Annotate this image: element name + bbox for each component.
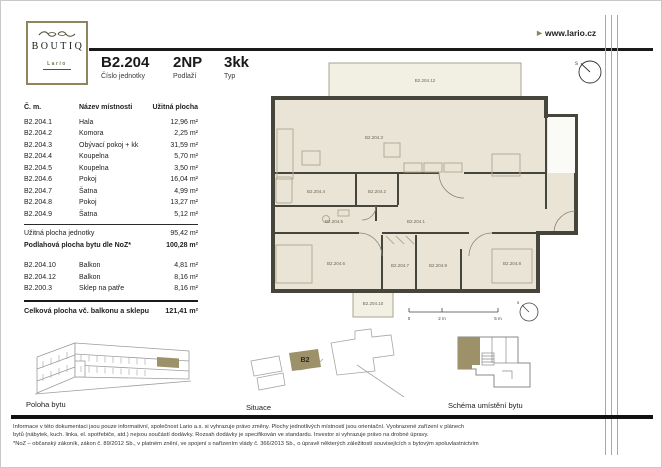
cell-name: Sklep na patře <box>79 283 142 295</box>
cell-name: Šatna <box>79 186 142 198</box>
table-row: B2.204.2Komora2,25 m² <box>24 128 198 140</box>
unit-number: B2.204 <box>101 55 149 70</box>
table-row: B2.204.9Šatna5,12 m² <box>24 209 198 221</box>
scale-two: 2 m <box>438 316 446 321</box>
col-header-code: Č. m. <box>24 102 79 114</box>
ornament-icon <box>37 29 77 40</box>
cell-area: 31,59 m² <box>142 140 198 152</box>
gold-line <box>617 15 618 455</box>
unit-sheet-page: BOUTIQ Lario B2.204 Číslo jednotky 2NP P… <box>0 0 662 468</box>
summary-usable-label: Užitná plocha jednotky <box>24 228 170 240</box>
cell-code: B2.204.4 <box>24 151 79 163</box>
table-row: B2.204.6Pokoj16,04 m² <box>24 174 198 186</box>
table-row: B2.204.8Pokoj13,27 m² <box>24 197 198 209</box>
type-value: 3kk <box>224 55 249 70</box>
type-label: Typ <box>224 73 249 80</box>
plan-compass-icon: s <box>517 300 538 321</box>
floor-block: 2NP Podlaží <box>173 55 202 80</box>
col-header-area: Užitná plocha <box>142 102 198 114</box>
stairwell-area <box>548 117 575 173</box>
cell-code: B2.204.8 <box>24 197 79 209</box>
scale-five: 5 m <box>494 316 502 321</box>
table-header-row: Č. m. Název místnosti Užitná plocha <box>24 102 198 114</box>
room-label: B2.204.6 <box>327 261 346 266</box>
floor-value: 2NP <box>173 55 202 70</box>
table-row: B2.204.12Balkon8,16 m² <box>24 272 198 284</box>
gold-line <box>611 15 612 455</box>
cell-name: Koupelna <box>79 163 142 175</box>
cell-code: B2.204.2 <box>24 128 79 140</box>
cell-name: Balkon <box>79 260 142 272</box>
schema-label: Schéma umístění bytu <box>448 401 523 410</box>
floor-plan: B2.204.12 B2.204.3 B2.204.4 B2.204.2 B2.… <box>264 59 601 329</box>
cell-code: B2.204.10 <box>24 260 79 272</box>
footer-line: *NoZ – občanský zákoník, zákon č. 89/201… <box>13 440 573 448</box>
table-divider <box>24 224 198 225</box>
summary-usable-row: Užitná plocha jednotky 95,42 m² <box>24 228 198 240</box>
cell-area: 5,12 m² <box>142 209 198 221</box>
table-row: B2.200.3Sklep na patře8,16 m² <box>24 283 198 295</box>
table-row: B2.204.5Koupelna3,50 m² <box>24 163 198 175</box>
table-row: B2.204.7Šatna4,99 m² <box>24 186 198 198</box>
room-label: B2.204.2 <box>368 189 387 194</box>
brand-name: BOUTIQ <box>30 41 86 52</box>
apartment-outline <box>273 98 576 291</box>
footer-rule <box>11 415 653 419</box>
table-row: B2.204.4Koupelna5,70 m² <box>24 151 198 163</box>
scale-zero: 0 <box>408 316 411 321</box>
brand-subname: Lario <box>43 58 71 70</box>
cell-area: 8,16 m² <box>142 272 198 284</box>
cell-code: B2.204.3 <box>24 140 79 152</box>
floor-label: Podlaží <box>173 73 202 80</box>
summary-noz-row: Podlahová plocha bytu dle NoZ* 100,28 m² <box>24 240 198 252</box>
rooms-table: Č. m. Název místnosti Užitná plocha B2.2… <box>24 102 198 316</box>
site-highlight-label: B2 <box>301 357 310 364</box>
summary-usable-value: 95,42 m² <box>170 228 198 240</box>
room-label: B2.204.1 <box>407 219 426 224</box>
website-text: www.lario.cz <box>545 28 596 38</box>
table-row: B2.204.10Balkon4,81 m² <box>24 260 198 272</box>
cell-area: 8,16 m² <box>142 283 198 295</box>
footer-text: Informace v této dokumentaci jsou pouze … <box>13 423 573 448</box>
room-label: B2.204.7 <box>391 263 410 268</box>
type-block: 3kk Typ <box>224 55 249 80</box>
cell-name: Hala <box>79 117 142 129</box>
cell-area: 3,50 m² <box>142 163 198 175</box>
situace-label: Situace <box>246 403 271 412</box>
cell-code: B2.200.3 <box>24 283 79 295</box>
arrow-icon: ▶ <box>537 30 542 37</box>
total-row: Celková plocha vč. balkonu a sklepu 121,… <box>24 305 198 317</box>
cell-code: B2.204.7 <box>24 186 79 198</box>
room-label: B2.204.12 <box>415 78 436 83</box>
floor-plate-scheme <box>446 329 541 397</box>
cell-code: B2.204.9 <box>24 209 79 221</box>
total-value: 121,41 m² <box>165 305 198 317</box>
highlighted-unit-plate <box>458 337 480 369</box>
cell-name: Pokoj <box>79 197 142 209</box>
site-plan: B2 <box>239 323 434 401</box>
cell-area: 4,99 m² <box>142 186 198 198</box>
summary-noz-label: Podlahová plocha bytu dle NoZ* <box>24 240 166 252</box>
cell-code: B2.204.6 <box>24 174 79 186</box>
room-label: B2.204.3 <box>365 135 384 140</box>
room-label: B2.204.4 <box>307 189 326 194</box>
cell-name: Balkon <box>79 272 142 284</box>
cell-area: 5,70 m² <box>142 151 198 163</box>
cell-area: 13,27 m² <box>142 197 198 209</box>
cell-area: 4,81 m² <box>142 260 198 272</box>
rooms-table-body: B2.204.1Hala12,96 m²B2.204.2Komora2,25 m… <box>24 117 198 221</box>
cell-name: Obývací pokoj + kk <box>79 140 142 152</box>
cell-name: Koupelna <box>79 151 142 163</box>
brand-logo: BOUTIQ Lario <box>26 21 88 85</box>
extras-table-body: B2.204.10Balkon4,81 m²B2.204.12Balkon8,1… <box>24 260 198 295</box>
plan-compass-label: s <box>517 300 520 305</box>
summary-noz-value: 100,28 m² <box>166 240 198 252</box>
highlighted-unit <box>157 357 179 368</box>
cell-code: B2.204.5 <box>24 163 79 175</box>
room-label: B2.204.9 <box>429 263 448 268</box>
poloha-label: Poloha bytu <box>26 400 66 409</box>
table-divider-thick <box>24 300 198 302</box>
cell-code: B2.204.1 <box>24 117 79 129</box>
website-link[interactable]: ▶www.lario.cz <box>537 28 596 38</box>
footer-line: bytů (nábytek, kuch. linka, el. spotřebi… <box>13 431 573 439</box>
total-label: Celková plocha vč. balkonu a sklepu <box>24 305 165 317</box>
building-illustration <box>31 331 196 399</box>
cell-code: B2.204.12 <box>24 272 79 284</box>
table-row: B2.204.1Hala12,96 m² <box>24 117 198 129</box>
room-label: B2.204.5 <box>325 219 344 224</box>
table-row: B2.204.3Obývací pokoj + kk31,59 m² <box>24 140 198 152</box>
room-label: B2.204.10 <box>363 301 384 306</box>
cell-name: Šatna <box>79 209 142 221</box>
cell-area: 2,25 m² <box>142 128 198 140</box>
cell-area: 12,96 m² <box>142 117 198 129</box>
cell-name: Komora <box>79 128 142 140</box>
header-rule <box>89 48 653 51</box>
room-label: B2.204.8 <box>503 261 522 266</box>
footer-line: Informace v této dokumentaci jsou pouze … <box>13 423 573 431</box>
col-header-name: Název místnosti <box>79 102 142 114</box>
unit-number-label: Číslo jednotky <box>101 73 149 80</box>
cell-name: Pokoj <box>79 174 142 186</box>
cell-area: 16,04 m² <box>142 174 198 186</box>
unit-number-block: B2.204 Číslo jednotky <box>101 55 149 80</box>
scale-bar: 0 2 m 5 m <box>408 308 502 321</box>
